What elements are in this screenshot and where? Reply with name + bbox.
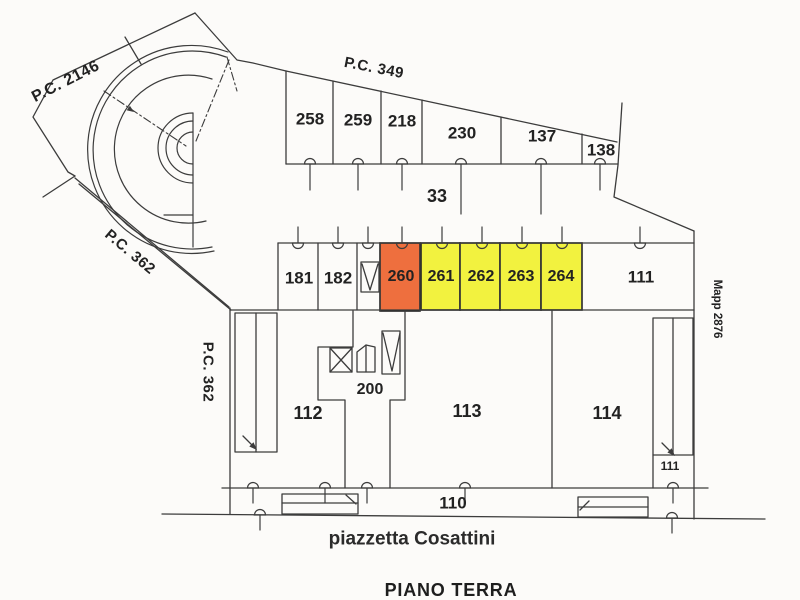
door-icon (594, 159, 606, 191)
room-200-walls (318, 311, 405, 488)
room-label-111-small: 111 (661, 460, 680, 472)
door-icon (352, 159, 364, 191)
unit-label-262: 262 (468, 269, 495, 285)
unit-label-138: 138 (587, 142, 615, 159)
unit-label-260: 260 (388, 269, 415, 285)
unit-label-259: 259 (344, 112, 372, 129)
unit-label-263: 263 (508, 269, 535, 285)
unit-label-181: 181 (285, 270, 313, 287)
ramp-icon (357, 345, 375, 372)
door-icon (332, 227, 344, 249)
door-icon (396, 159, 408, 191)
door-icon (361, 483, 373, 504)
unit-label-137: 137 (528, 128, 556, 145)
boundary-label-pc362-lower: P.C. 362 (201, 342, 216, 402)
unit-label-182: 182 (324, 270, 352, 287)
courtyard-label-33: 33 (427, 187, 447, 205)
room-label-113: 113 (452, 402, 481, 420)
staircase-upper (361, 262, 379, 292)
room-label-114: 114 (592, 404, 621, 422)
elevator-icon (330, 348, 352, 372)
site-plan-svg (0, 0, 800, 600)
door-icon (292, 227, 304, 249)
door-icon (667, 483, 679, 504)
door-icon (247, 483, 259, 504)
door-icon (254, 510, 266, 531)
staircase-mid (382, 331, 400, 374)
room-label-110: 110 (439, 495, 466, 512)
portico-left (235, 313, 277, 452)
door-icon (362, 227, 374, 249)
unit-label-258: 258 (296, 111, 324, 128)
door-icon (535, 159, 547, 215)
room-label-112: 112 (293, 404, 322, 422)
boundary-label-mapp2876: Mapp 2876 (710, 280, 722, 339)
unit-label-264: 264 (548, 269, 575, 285)
unit-label-230: 230 (448, 125, 476, 142)
room-label-200: 200 (357, 382, 384, 398)
unit-label-111: 111 (628, 269, 655, 286)
door-icon (634, 227, 646, 249)
unit-label-218: 218 (388, 113, 416, 130)
street-name-label: piazzetta Cosattini (329, 530, 496, 549)
door-icon (455, 159, 467, 215)
cadastral-plan: 258 259 218 230 137 138 33 181 182 260 2… (0, 0, 800, 600)
round-structure (88, 45, 228, 253)
door-icon (319, 483, 331, 504)
door-icon (304, 159, 316, 191)
upper-strip-outline (286, 71, 694, 231)
door-symbols (247, 159, 679, 534)
unit-label-261: 261 (428, 269, 455, 285)
door-icon (666, 513, 678, 534)
page-title: PIANO TERRA (385, 581, 518, 599)
